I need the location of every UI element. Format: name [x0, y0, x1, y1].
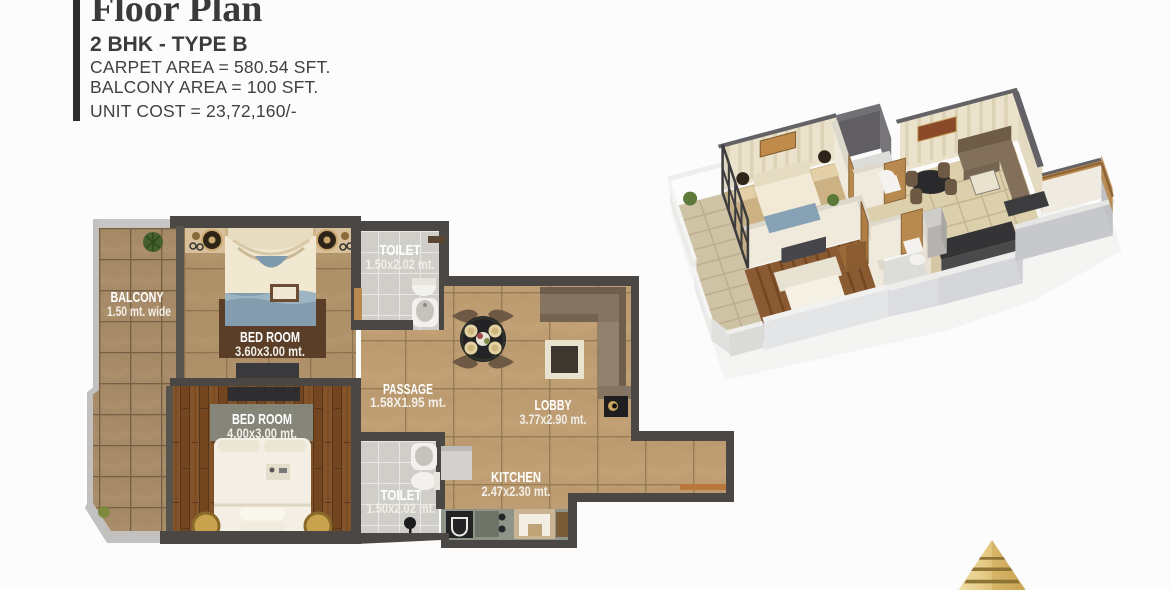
svg-text:2.47x2.30 mt.: 2.47x2.30 mt.	[482, 484, 551, 499]
svg-text:3.60x3.00 mt.: 3.60x3.00 mt.	[235, 344, 305, 359]
svg-text:1.58X1.95 mt.: 1.58X1.95 mt.	[370, 395, 446, 410]
svg-text:1.50x2.02 mt.: 1.50x2.02 mt.	[366, 257, 435, 272]
svg-text:3.77x2.90 mt.: 3.77x2.90 mt.	[520, 412, 587, 427]
svg-text:1.50x2.02 mt.: 1.50x2.02 mt.	[367, 501, 436, 516]
svg-text:4.00x3.00 mt.: 4.00x3.00 mt.	[227, 426, 297, 441]
svg-text:1.50 mt. wide: 1.50 mt. wide	[107, 304, 171, 319]
